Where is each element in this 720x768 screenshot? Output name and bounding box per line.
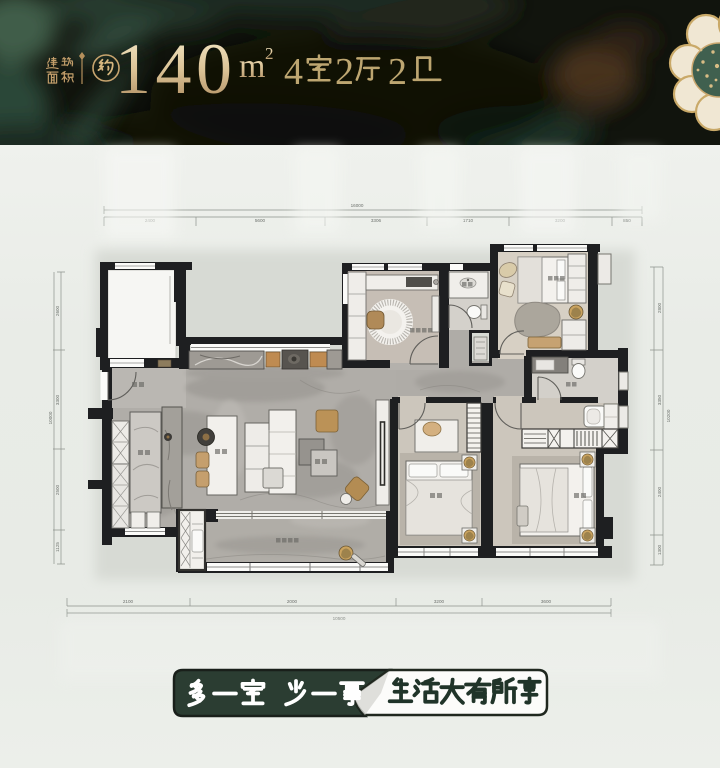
- svg-text:1125: 1125: [55, 542, 60, 552]
- svg-text:2500: 2500: [55, 484, 60, 495]
- svg-text:16000: 16000: [351, 203, 364, 208]
- svg-text:2600: 2600: [55, 305, 60, 316]
- svg-text:3600: 3600: [541, 599, 552, 604]
- svg-text:3350: 3350: [657, 394, 662, 405]
- svg-text:2100: 2100: [123, 599, 134, 604]
- svg-text:3300: 3300: [55, 394, 60, 405]
- svg-text:10000: 10000: [48, 411, 53, 424]
- svg-text:5600: 5600: [255, 218, 266, 223]
- svg-text:10200: 10200: [666, 409, 671, 422]
- svg-text:3200: 3200: [434, 599, 445, 604]
- svg-text:2800: 2800: [657, 302, 662, 313]
- svg-text:1710: 1710: [463, 218, 474, 223]
- svg-text:2400: 2400: [657, 486, 662, 497]
- svg-text:3306: 3306: [371, 218, 382, 223]
- svg-text:1300: 1300: [657, 544, 662, 555]
- svg-text:2000: 2000: [287, 599, 298, 604]
